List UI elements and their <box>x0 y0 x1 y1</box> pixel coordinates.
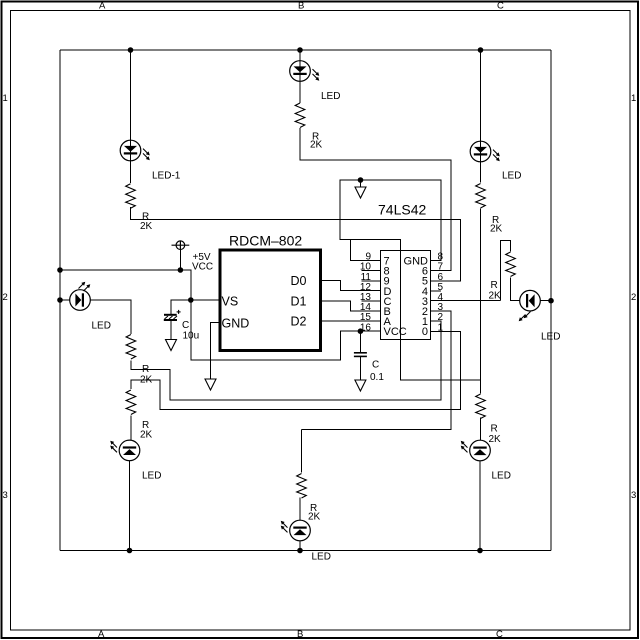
svg-text:LED: LED <box>502 171 521 182</box>
svg-text:A: A <box>98 629 105 640</box>
svg-text:2: 2 <box>3 292 8 303</box>
svg-text:LED: LED <box>492 471 511 482</box>
svg-text:R: R <box>491 280 498 291</box>
svg-text:2K: 2K <box>140 221 153 232</box>
svg-text:A: A <box>99 1 106 12</box>
svg-text:16: 16 <box>360 322 372 333</box>
svg-text:VCC: VCC <box>384 326 407 338</box>
svg-text:D1: D1 <box>291 295 307 309</box>
svg-text:LED-1: LED-1 <box>152 171 181 182</box>
svg-text:D2: D2 <box>291 315 307 329</box>
svg-text:R: R <box>142 364 149 375</box>
svg-text:3: 3 <box>631 490 636 501</box>
svg-text:LED: LED <box>541 332 560 343</box>
svg-text:R: R <box>491 424 498 435</box>
svg-text:0.1: 0.1 <box>370 372 384 383</box>
svg-text:1: 1 <box>3 93 8 104</box>
svg-text:C: C <box>372 360 379 371</box>
svg-text:2K: 2K <box>308 512 321 523</box>
svg-text:2K: 2K <box>489 434 502 445</box>
svg-text:74LS42: 74LS42 <box>378 202 426 218</box>
svg-text:2K: 2K <box>140 430 153 441</box>
svg-text:LED: LED <box>142 471 161 482</box>
svg-text:VS: VS <box>222 295 239 309</box>
svg-text:1: 1 <box>631 93 636 104</box>
svg-text:B: B <box>298 1 304 12</box>
svg-text:2K: 2K <box>140 375 153 386</box>
svg-text:GND: GND <box>222 317 250 331</box>
svg-text:0: 0 <box>422 326 428 338</box>
svg-text:LED: LED <box>92 321 111 332</box>
svg-text:2K: 2K <box>490 224 503 235</box>
svg-text:3: 3 <box>3 490 8 501</box>
svg-text:C: C <box>496 629 503 640</box>
svg-text:C: C <box>182 320 189 331</box>
svg-text:LED: LED <box>321 91 340 102</box>
svg-text:10u: 10u <box>183 331 200 342</box>
svg-text:LED: LED <box>312 552 331 563</box>
svg-text:2: 2 <box>631 292 636 303</box>
svg-text:D0: D0 <box>291 274 307 288</box>
svg-text:VCC: VCC <box>192 262 213 273</box>
svg-text:2K: 2K <box>489 291 502 302</box>
svg-text:2K: 2K <box>310 140 323 151</box>
svg-text:1: 1 <box>438 322 444 333</box>
svg-text:B: B <box>297 629 303 640</box>
svg-text:RDCM–802: RDCM–802 <box>229 233 302 249</box>
svg-text:C: C <box>497 1 504 12</box>
